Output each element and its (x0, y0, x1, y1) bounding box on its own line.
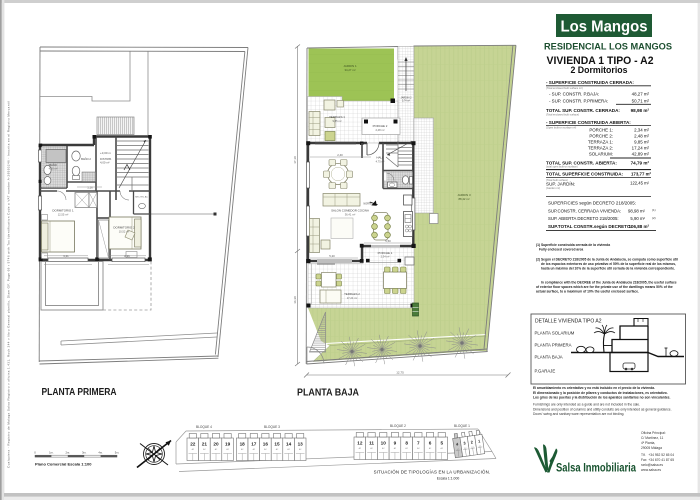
svg-text:SITUACIÓN DE TIPOLOGÍAS EN LA: SITUACIÓN DE TIPOLOGÍAS EN LA URBANIZACI… (374, 470, 491, 475)
svg-text:PLANTA BAJA: PLANTA BAJA (535, 355, 563, 360)
svg-text:BLOQUE 2: BLOQUE 2 (390, 424, 406, 428)
svg-text:- SUP. CONSTR. P.BAJA:: - SUP. CONSTR. P.BAJA: (549, 92, 599, 97)
svg-text:Tlf. +34 952 52 65 04: Tlf. +34 952 52 65 04 (641, 453, 674, 457)
svg-text:9,85 m²: 9,85 m² (332, 119, 341, 123)
svg-text:12,75: 12,75 (396, 371, 404, 375)
svg-text:5,74 m²: 5,74 m² (402, 100, 410, 103)
svg-text:TERRAZA 2: TERRAZA 2 (344, 292, 360, 296)
svg-text:El dimensionado y la posición: El dimensionado y la posición de pilares… (533, 391, 668, 395)
svg-text:5,90 m²: 5,90 m² (630, 216, 645, 221)
svg-text:7: 7 (417, 441, 420, 446)
svg-text:3m.: 3m. (82, 450, 87, 454)
svg-text:hasta un máximo del 10% de la: hasta un máximo del 10% de la superficie… (541, 267, 675, 271)
svg-text:36,41 m²: 36,41 m² (345, 212, 356, 216)
svg-text:5,50: 5,50 (385, 239, 391, 243)
svg-text:4,60 m²: 4,60 m² (49, 167, 58, 171)
svg-text:9,85 m²: 9,85 m² (634, 140, 649, 145)
svg-text:Escala 1:1.000: Escala 1:1.000 (437, 476, 460, 480)
svg-text:TERRAZA 1:: TERRAZA 1: (588, 140, 613, 145)
svg-text:106,88 m²: 106,88 m² (628, 224, 649, 229)
svg-text:C/ Martínez, 11: C/ Martínez, 11 (641, 436, 663, 440)
svg-text:(2) Según el DECRETO 218/2005: (2) Según el DECRETO 218/2005 de la Junt… (536, 257, 678, 261)
svg-text:TERRAZA 2:: TERRAZA 2: (588, 146, 613, 151)
svg-text:- SUP. CONSTR. P.PRIMERA:: - SUP. CONSTR. P.PRIMERA: (549, 99, 608, 104)
svg-text:(Total enclosed built surface): (Total enclosed built surface) (546, 112, 579, 116)
svg-text:173,77 m²: 173,77 m² (631, 171, 652, 176)
svg-text:SUPERFICIES según DECRETO 218/: SUPERFICIES según DECRETO 218/2005: (548, 200, 636, 205)
svg-text:Salsa Inmobiliaria: Salsa Inmobiliaria (556, 461, 636, 475)
svg-text:21: 21 (202, 442, 208, 447)
svg-text:2,48 m²: 2,48 m² (634, 134, 649, 139)
svg-text:DETALLE VIVIENDA TIPO A2: DETALLE VIVIENDA TIPO A2 (535, 319, 602, 325)
svg-text:4,00 m²: 4,00 m² (100, 161, 110, 165)
svg-text:(total open built-on surface): (total open built-on surface) (546, 165, 578, 169)
svg-text:SUP. JARDÍN:: SUP. JARDÍN: (546, 181, 575, 187)
svg-text:Doors' swing and sanitary ware: Doors' swing and sanitary ware represent… (533, 412, 624, 416)
svg-text:Fax +34 670 41 87 65: Fax +34 670 41 87 65 (641, 458, 674, 462)
svg-text:1m.: 1m. (49, 450, 54, 454)
svg-text:PLANTA PRIMERA: PLANTA PRIMERA (535, 343, 572, 348)
svg-text:PORCHE 1: PORCHE 1 (378, 251, 393, 255)
svg-text:BLOQUE 4: BLOQUE 4 (196, 425, 212, 429)
svg-text:4m.: 4m. (98, 450, 103, 454)
svg-text:P.GARAJE: P.GARAJE (535, 369, 556, 374)
svg-text:12,55 m²: 12,55 m² (58, 213, 69, 217)
svg-text:TOTAL SUP. CONSTR. CERRADA:: TOTAL SUP. CONSTR. CERRADA: (546, 108, 620, 113)
svg-text:(1) Superficie construida cerr: (1) Superficie construida cerrada de la … (536, 243, 610, 247)
svg-text:34,27 m²: 34,27 m² (344, 68, 355, 72)
svg-text:NORTE: NORTE (364, 203, 373, 206)
svg-text:RESIDENCIAL LOS MANGOS: RESIDENCIAL LOS MANGOS (544, 42, 672, 53)
svg-text:PORCHE 2: PORCHE 2 (373, 124, 388, 128)
svg-text:2,34 m²: 2,34 m² (634, 128, 649, 133)
svg-text:3,21: 3,21 (63, 254, 69, 258)
svg-text:17: 17 (251, 442, 257, 447)
svg-text:13: 13 (298, 442, 304, 447)
svg-text:www.salsa.es: www.salsa.es (641, 468, 661, 472)
svg-text:PLANTA PRIMERA: PLANTA PRIMERA (42, 386, 117, 398)
svg-text:In compliance with the DECREE: In compliance with the DECREE of the Jun… (541, 280, 677, 284)
svg-text:19: 19 (225, 442, 231, 447)
svg-text:22: 22 (190, 442, 196, 447)
svg-text:TOTAL SUPERFICIE CONSTRUIDA:: TOTAL SUPERFICIE CONSTRUIDA: (546, 171, 624, 176)
svg-text:2m.: 2m. (66, 450, 71, 454)
svg-text:PLANTA SOLARIUM: PLANTA SOLARIUM (535, 331, 575, 336)
svg-text:(Total enclosed built surface: (Total enclosed built surface m²) (546, 86, 583, 90)
svg-text:Los giros de las puertas y la: Los giros de las puertas y la distribuci… (533, 396, 670, 400)
svg-text:15: 15 (274, 442, 280, 447)
svg-text:5: 5 (440, 441, 443, 446)
svg-text:Cualquiera - Registro de Malag: Cualquiera - Registro de Malaga Salsa Re… (7, 101, 11, 468)
svg-text:DORMITORIO 1: DORMITORIO 1 (52, 209, 74, 213)
svg-text:PORCHE 2:: PORCHE 2: (589, 134, 613, 139)
svg-text:SUP.CONSTR. CERRADA VIVIENDA:: SUP.CONSTR. CERRADA VIVIENDA: (548, 208, 621, 213)
svg-text:SUP.TOTAL CONSTR.según DECRETO: SUP.TOTAL CONSTR.según DECRETO: (548, 224, 632, 229)
svg-text:16: 16 (263, 442, 269, 447)
svg-text:TOTAL SUP. CONSTR. ABIERTA:: TOTAL SUP. CONSTR. ABIERTA: (546, 160, 617, 165)
svg-text:- SUPERFICIE CONSTRUIDA ABIERT: - SUPERFICIE CONSTRUIDA ABIERTA: (546, 120, 631, 125)
svg-text:Dimensions and position of col: Dimensions and position of columns and u… (533, 407, 672, 411)
svg-text:(1): (1) (652, 208, 656, 212)
svg-text:DORMITORIO 2: DORMITORIO 2 (113, 226, 135, 230)
svg-text:4ª Planta,: 4ª Planta, (641, 441, 655, 445)
svg-text:SEC.TEL.AC: SEC.TEL.AC (135, 196, 148, 199)
svg-text:BLOQUE 3: BLOQUE 3 (264, 425, 280, 429)
svg-text:48,27 m²: 48,27 m² (632, 92, 650, 97)
svg-text:98,98 m²: 98,98 m² (631, 108, 650, 113)
svg-text:PORCHE 1:: PORCHE 1: (589, 128, 613, 133)
svg-text:Oficina Principal:: Oficina Principal: (641, 431, 666, 435)
svg-text:88,42 m²: 88,42 m² (458, 197, 469, 201)
svg-text:17,10: 17,10 (293, 156, 297, 164)
svg-text:El amueblamiento es orientativ: El amueblamiento es orientativo y no est… (533, 386, 655, 390)
svg-text:9: 9 (394, 441, 397, 446)
svg-text:2,99: 2,99 (124, 254, 130, 258)
svg-text:actual surface, to a maximum o: actual surface, to a maximum of 10% the … (536, 290, 639, 294)
svg-text:2,40: 2,40 (337, 153, 343, 157)
svg-text:TERRAZA 1: TERRAZA 1 (329, 115, 345, 119)
svg-text:2,34 m²: 2,34 m² (381, 254, 390, 258)
svg-text:BLOQUE 1: BLOQUE 1 (454, 424, 470, 428)
svg-text:50,71 m²: 50,71 m² (632, 99, 650, 104)
svg-text:42,89 m²: 42,89 m² (632, 152, 650, 157)
svg-text:de los espacios exteriores de: de los espacios exteriores de uso privat… (541, 262, 676, 266)
svg-text:SOLARIUM:: SOLARIUM: (589, 152, 613, 157)
svg-text:Furnishings are only intended: Furnishings are only intended as a guide… (533, 403, 640, 407)
svg-text:10,52 m²: 10,52 m² (119, 230, 130, 234)
svg-text:74,79 m²: 74,79 m² (631, 160, 650, 165)
svg-text:5m.: 5m. (115, 450, 120, 454)
svg-text:Fully enclosed covered area: Fully enclosed covered area (539, 248, 583, 252)
svg-text:+3,00 m: +3,00 m (100, 151, 111, 155)
svg-text:5,20: 5,20 (329, 254, 335, 258)
svg-text:SALON COMEDOR COCINA: SALON COMEDOR COCINA (331, 209, 369, 213)
svg-text:rarlo@salsa.es: rarlo@salsa.es (641, 463, 663, 467)
svg-text:(Open built-on surface m²): (Open built-on surface m²) (546, 126, 576, 130)
svg-text:20: 20 (213, 442, 219, 447)
svg-text:17,24 m²: 17,24 m² (347, 296, 358, 300)
svg-text:of exterior floor spaces which: of exterior floor spaces which are for t… (536, 285, 673, 289)
svg-text:1,16: 1,16 (87, 186, 93, 190)
svg-text:14: 14 (286, 442, 292, 447)
svg-text:98,98 m²: 98,98 m² (628, 208, 646, 213)
svg-text:18: 18 (240, 442, 246, 447)
svg-text:122,45 m²: 122,45 m² (630, 181, 649, 186)
svg-text:Plano Comercial Escala 1:100: Plano Comercial Escala 1:100 (35, 462, 92, 467)
svg-text:PLANTA BAJA: PLANTA BAJA (297, 387, 359, 399)
svg-text:8: 8 (405, 441, 408, 446)
svg-text:12: 12 (357, 441, 363, 446)
svg-text:Los Mangos: Los Mangos (561, 19, 648, 36)
svg-text:- SUPERFICIE CONSTRUIDA CERRAD: - SUPERFICIE CONSTRUIDA CERRADA: (546, 80, 634, 85)
svg-text:(Garden m²): (Garden m²) (546, 186, 560, 190)
svg-text:10: 10 (381, 441, 387, 446)
svg-text:SUP. ABIERTA DECRETO 218/2005:: SUP. ABIERTA DECRETO 218/2005: (548, 216, 619, 221)
svg-text:17,24 m²: 17,24 m² (632, 146, 650, 151)
svg-text:29005 Málaga: 29005 Málaga (641, 446, 662, 450)
svg-text:14,30: 14,30 (293, 296, 297, 304)
svg-text:2,48 m²: 2,48 m² (375, 128, 384, 132)
svg-text:11: 11 (369, 441, 374, 446)
svg-text:2 Dormitorios: 2 Dormitorios (571, 65, 628, 75)
svg-text:(2): (2) (652, 216, 656, 220)
svg-text:6: 6 (429, 441, 432, 446)
